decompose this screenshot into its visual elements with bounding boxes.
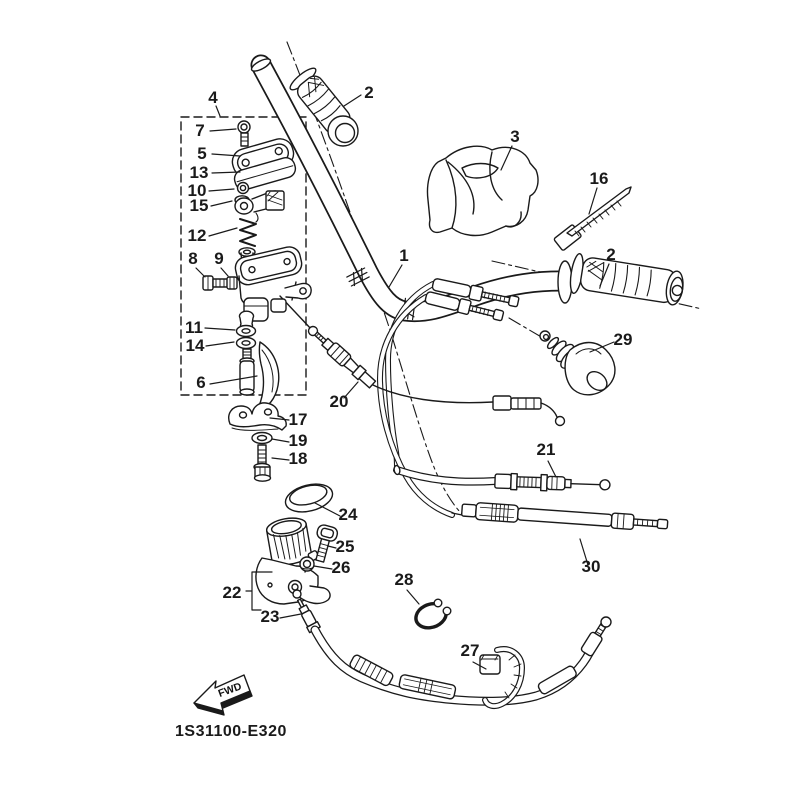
label-part-25: 25	[336, 537, 355, 556]
cap-screw-7	[238, 121, 250, 146]
steering-handle-diagram: FWD 1S31100-E320	[0, 0, 800, 800]
label-part-1: 1	[399, 246, 408, 265]
label-part-20: 20	[330, 392, 349, 411]
label-part-5: 5	[197, 144, 206, 163]
label-part-9: 9	[214, 249, 223, 268]
label-part-3: 3	[510, 127, 519, 146]
handlebar-clamp-17	[229, 403, 286, 431]
label-part-2-left: 2	[364, 83, 373, 102]
fwd-arrow: FWD	[194, 675, 252, 715]
spring-12	[240, 219, 256, 246]
label-part-24: 24	[339, 505, 358, 524]
label-part-12: 12	[188, 226, 207, 245]
label-part-29: 29	[614, 330, 633, 349]
cover-ring-24	[283, 480, 336, 517]
label-part-27: 27	[461, 641, 480, 660]
master-cylinder-body	[233, 245, 311, 321]
label-part-26: 26	[332, 558, 351, 577]
nut-9	[227, 277, 237, 289]
label-part-4: 4	[208, 88, 218, 107]
label-part-8: 8	[188, 249, 197, 268]
label-part-14: 14	[186, 336, 205, 355]
label-part-19: 19	[289, 431, 308, 450]
label-part-17: 17	[289, 410, 308, 429]
diagram-code: 1S31100-E320	[175, 723, 287, 740]
cable-30	[452, 502, 668, 533]
label-part-21: 21	[537, 440, 556, 459]
label-part-2-right: 2	[606, 245, 615, 264]
label-part-18: 18	[289, 449, 308, 468]
label-part-22: 22	[223, 583, 242, 602]
label-part-15: 15	[190, 196, 209, 215]
nut-10	[238, 183, 249, 194]
label-part-11: 11	[185, 318, 203, 337]
label-part-16: 16	[590, 169, 609, 188]
nut-26	[300, 557, 314, 571]
label-part-6: 6	[196, 373, 205, 392]
spring-clip	[416, 599, 451, 628]
washer-11	[237, 326, 256, 337]
label-part-30: 30	[582, 557, 601, 576]
label-part-28: 28	[395, 570, 414, 589]
parts-diagram-page: FWD 1S31100-E320	[0, 0, 800, 800]
washer-19	[252, 433, 272, 444]
label-part-7: 7	[195, 121, 204, 140]
label-part-13: 13	[190, 163, 209, 182]
washer-14	[237, 338, 256, 349]
grip-right	[568, 253, 685, 310]
handlebar-pad	[427, 146, 538, 235]
pushrod-6	[240, 342, 279, 412]
label-part-23: 23	[261, 607, 280, 626]
bolt-18	[254, 445, 271, 481]
cable-21	[393, 465, 610, 493]
cable-tie	[554, 187, 631, 251]
rubber-boot	[540, 331, 615, 395]
